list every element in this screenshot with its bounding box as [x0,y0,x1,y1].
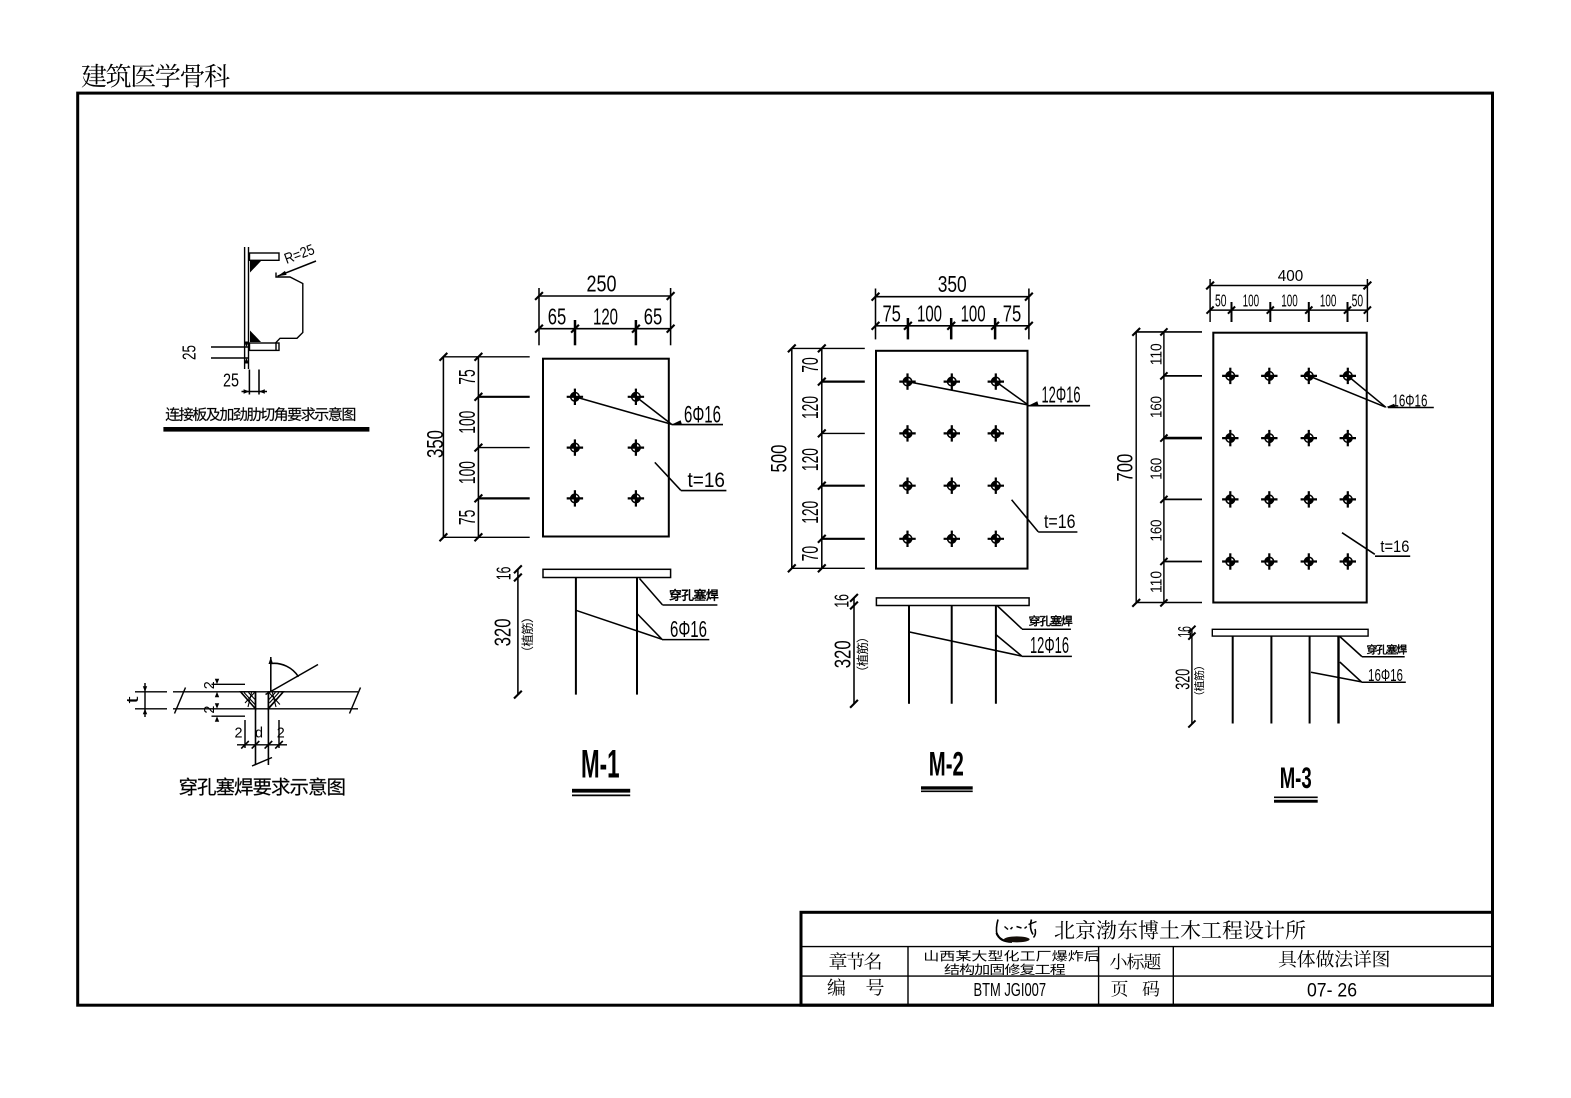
svg-text:M-1: M-1 [581,743,620,787]
svg-text:M-2: M-2 [929,746,964,784]
svg-text:70: 70 [797,357,823,373]
svg-text:75: 75 [454,510,480,526]
svg-text:700: 700 [1113,454,1138,482]
svg-text:t=16: t=16 [1380,537,1409,556]
svg-text:6Φ16: 6Φ16 [684,402,721,429]
svg-text:100: 100 [454,411,480,434]
svg-text:16Φ16: 16Φ16 [1368,665,1403,685]
svg-text:75: 75 [454,369,480,385]
svg-text:25: 25 [180,345,200,360]
svg-text:6Φ16: 6Φ16 [670,616,707,642]
svg-text:t=16: t=16 [1044,511,1076,533]
svg-text:2: 2 [201,706,218,714]
svg-text:100: 100 [961,300,986,326]
svg-text:350: 350 [938,271,967,297]
svg-text:16Φ16: 16Φ16 [1392,391,1427,411]
svg-text:250: 250 [587,271,617,297]
svg-text:100: 100 [917,300,942,326]
svg-text:500: 500 [767,445,792,473]
svg-text:50: 50 [1352,290,1364,310]
svg-text:160: 160 [1149,519,1166,541]
svg-text:100: 100 [1281,290,1298,310]
svg-text:120: 120 [797,396,823,419]
svg-text:100: 100 [1320,290,1337,310]
svg-text:120: 120 [593,304,618,330]
svg-text:160: 160 [1149,458,1166,480]
svg-text:07- 26: 07- 26 [1307,980,1357,1001]
svg-text:BTM JGI007: BTM JGI007 [974,980,1047,1000]
svg-text:16: 16 [1175,626,1195,638]
svg-text:16: 16 [494,567,516,581]
svg-text:100: 100 [454,461,480,484]
svg-text:120: 120 [797,501,823,524]
svg-text:320: 320 [1173,669,1195,690]
svg-text:12Φ16: 12Φ16 [1042,382,1081,408]
svg-text:d: d [255,725,263,742]
svg-text:65: 65 [644,304,663,330]
svg-text:75: 75 [882,300,901,326]
svg-text:75: 75 [1003,300,1022,326]
svg-text:110: 110 [1149,571,1166,593]
svg-text:400: 400 [1278,268,1304,285]
svg-text:t: t [123,696,142,703]
svg-text:160: 160 [1149,396,1166,418]
svg-text:M-3: M-3 [1280,762,1312,795]
svg-text:t=16: t=16 [688,469,726,492]
svg-text:70: 70 [797,546,823,562]
svg-text:25: 25 [223,371,239,391]
svg-text:110: 110 [1149,343,1166,365]
svg-text:50: 50 [1215,290,1227,310]
svg-text:2: 2 [235,725,243,742]
svg-text:12Φ16: 12Φ16 [1030,632,1069,658]
svg-text:2: 2 [201,681,218,689]
svg-text:100: 100 [1243,290,1260,310]
svg-text:320: 320 [830,640,856,668]
svg-text:2: 2 [277,725,285,742]
svg-text:350: 350 [422,430,448,458]
svg-text:16: 16 [832,594,854,608]
svg-text:120: 120 [797,448,823,471]
svg-text:65: 65 [548,304,567,330]
svg-text:320: 320 [489,618,515,646]
